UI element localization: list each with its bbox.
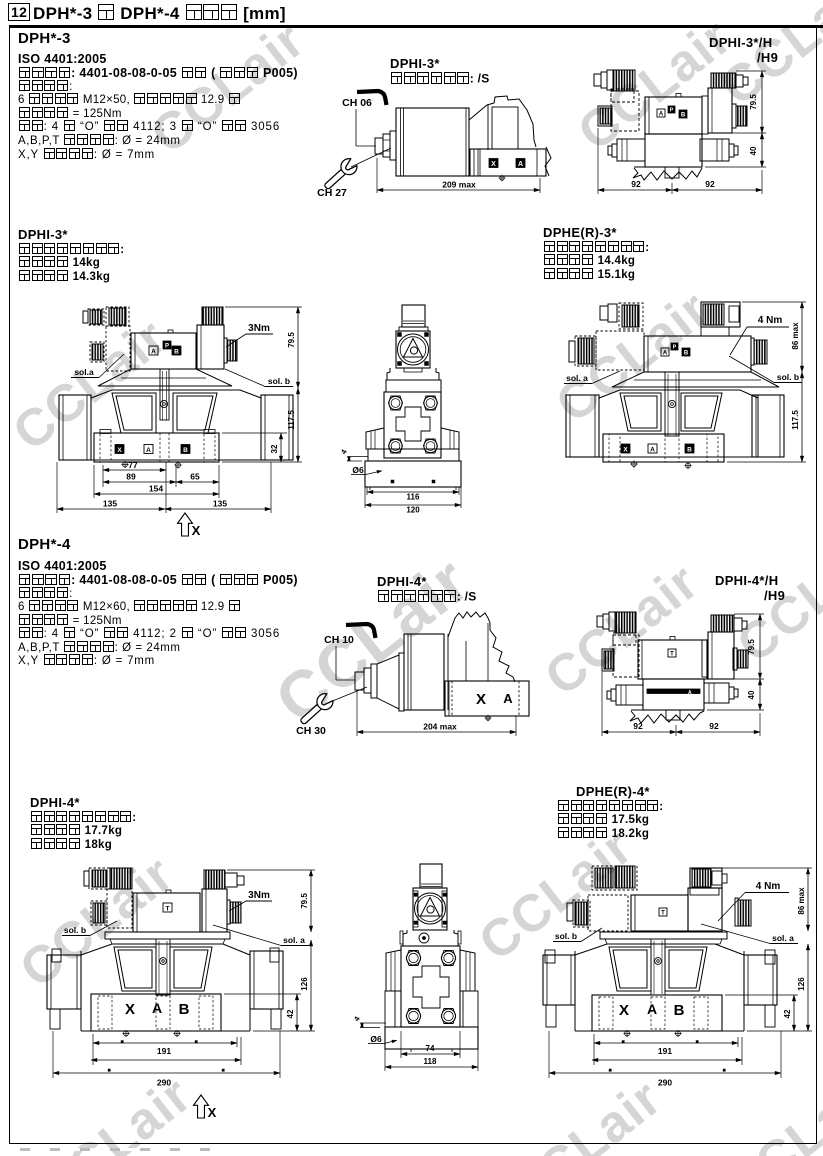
svg-text:CH 10: CH 10 xyxy=(324,634,354,646)
svg-text:B: B xyxy=(684,350,689,356)
svg-text:A: A xyxy=(151,348,156,355)
svg-text:X: X xyxy=(192,523,201,538)
svg-text:A: A xyxy=(647,1001,657,1017)
svg-text:204 max: 204 max xyxy=(423,722,457,732)
svg-text:Ø6: Ø6 xyxy=(370,1034,382,1044)
svg-text:P: P xyxy=(673,344,677,350)
svg-text:B: B xyxy=(183,447,188,454)
svg-text:126: 126 xyxy=(797,977,806,991)
svg-text:CH 30: CH 30 xyxy=(296,725,326,737)
svg-text:sol. b: sol. b xyxy=(555,931,577,941)
svg-text:P: P xyxy=(165,343,169,349)
svg-text:116: 116 xyxy=(407,493,420,502)
svg-text:209 max: 209 max xyxy=(442,180,476,190)
svg-text:89: 89 xyxy=(126,472,136,482)
svg-text:92: 92 xyxy=(633,721,643,731)
svg-text:40: 40 xyxy=(749,146,758,155)
svg-text:sol. a: sol. a xyxy=(283,935,305,945)
svg-text:86 max: 86 max xyxy=(797,887,806,915)
svg-text:118: 118 xyxy=(424,1057,437,1066)
svg-text:CH 27: CH 27 xyxy=(317,187,347,199)
svg-text:X: X xyxy=(125,1001,135,1018)
svg-text:A: A xyxy=(663,350,668,356)
svg-text:191: 191 xyxy=(658,1046,672,1056)
svg-text:A: A xyxy=(503,691,513,706)
svg-text:B: B xyxy=(179,1001,190,1018)
svg-text:B: B xyxy=(674,1002,685,1019)
svg-text:B: B xyxy=(687,446,692,453)
svg-text:40: 40 xyxy=(747,690,756,699)
svg-text:79.5: 79.5 xyxy=(749,94,758,110)
svg-text:4: 4 xyxy=(339,447,349,456)
svg-text:sol.a: sol.a xyxy=(74,367,94,377)
svg-text:4 Nm: 4 Nm xyxy=(758,315,783,326)
svg-text:A: A xyxy=(152,1000,162,1016)
svg-text:92: 92 xyxy=(631,179,641,189)
svg-text:290: 290 xyxy=(658,1078,672,1088)
svg-text:Ø6: Ø6 xyxy=(352,465,364,475)
svg-text:sol. b: sol. b xyxy=(268,376,290,386)
svg-text:sol. b: sol. b xyxy=(777,372,799,382)
svg-text:3Nm: 3Nm xyxy=(248,890,270,901)
svg-text:X: X xyxy=(117,447,122,454)
svg-text:117.5: 117.5 xyxy=(287,410,296,430)
svg-text:X: X xyxy=(491,161,496,168)
svg-text:79.5: 79.5 xyxy=(300,893,309,909)
svg-text:A: A xyxy=(659,111,664,117)
svg-text:74: 74 xyxy=(426,1044,435,1053)
svg-text:CH 06: CH 06 xyxy=(342,97,372,109)
svg-text:B: B xyxy=(681,112,686,118)
svg-text:sol. b: sol. b xyxy=(64,925,86,935)
svg-text:T: T xyxy=(670,651,674,657)
svg-text:77: 77 xyxy=(128,460,138,470)
svg-text:sol. a: sol. a xyxy=(772,933,794,943)
svg-text:sol. a: sol. a xyxy=(566,373,588,383)
svg-text:A: A xyxy=(650,446,655,453)
svg-text:154: 154 xyxy=(149,484,163,494)
svg-text:T: T xyxy=(166,905,170,912)
svg-text:79.5: 79.5 xyxy=(287,332,296,348)
svg-text:X: X xyxy=(208,1105,217,1120)
svg-text:X: X xyxy=(619,1002,629,1019)
svg-text:P: P xyxy=(670,107,674,113)
svg-text:A: A xyxy=(518,161,523,168)
svg-text:X: X xyxy=(623,446,628,453)
svg-text:42: 42 xyxy=(286,1009,295,1018)
svg-text:126: 126 xyxy=(300,977,309,991)
svg-text:120: 120 xyxy=(406,506,420,515)
svg-text:65: 65 xyxy=(190,472,200,482)
svg-text:191: 191 xyxy=(157,1046,171,1056)
svg-text:4 Nm: 4 Nm xyxy=(756,881,781,892)
svg-text:117.5: 117.5 xyxy=(791,410,800,430)
svg-text:92: 92 xyxy=(709,721,719,731)
svg-text:3Nm: 3Nm xyxy=(248,323,270,334)
svg-text:42: 42 xyxy=(783,1009,792,1018)
svg-text:T: T xyxy=(661,910,665,916)
svg-text:4: 4 xyxy=(352,1014,362,1023)
svg-text:92: 92 xyxy=(705,179,715,189)
svg-text:32: 32 xyxy=(270,444,279,453)
svg-text:135: 135 xyxy=(103,499,117,509)
svg-text:290: 290 xyxy=(157,1078,171,1088)
svg-text:135: 135 xyxy=(213,499,227,509)
svg-text:B: B xyxy=(174,348,179,355)
svg-text:X: X xyxy=(476,691,486,708)
svg-text:79.5: 79.5 xyxy=(747,639,756,655)
svg-text:86 max: 86 max xyxy=(791,322,800,350)
svg-text:A: A xyxy=(146,447,151,454)
svg-text:A: A xyxy=(688,690,692,696)
